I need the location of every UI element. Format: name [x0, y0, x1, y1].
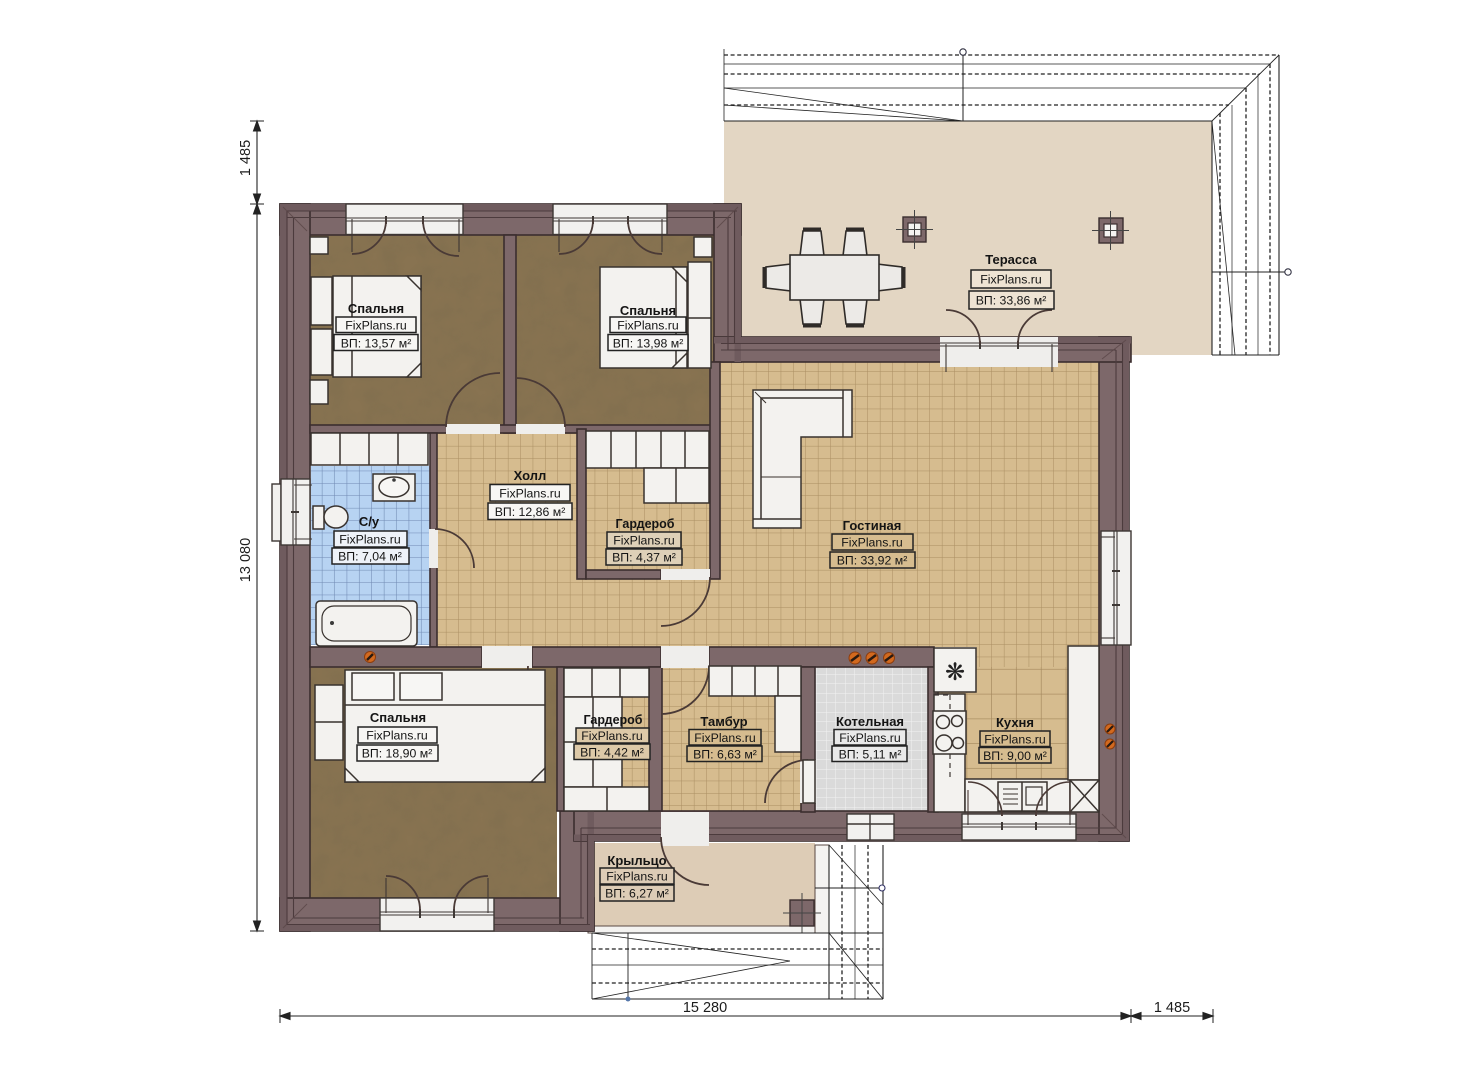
svg-text:ВП: 13,98 м²: ВП: 13,98 м²: [613, 337, 684, 351]
svg-text:Спальня: Спальня: [370, 710, 426, 725]
svg-text:FixPlans.ru: FixPlans.ru: [581, 729, 643, 743]
svg-text:Гардероб: Гардероб: [583, 713, 642, 727]
svg-text:ВП: 9,00 м²: ВП: 9,00 м²: [983, 749, 1047, 763]
svg-text:FixPlans.ru: FixPlans.ru: [694, 731, 756, 745]
svg-text:1 485: 1 485: [238, 140, 254, 176]
svg-text:ВП: 7,04 м²: ВП: 7,04 м²: [338, 550, 402, 564]
svg-text:13 080: 13 080: [238, 538, 254, 582]
svg-text:FixPlans.ru: FixPlans.ru: [499, 487, 561, 501]
svg-text:1 485: 1 485: [1154, 1000, 1190, 1016]
svg-text:FixPlans.ru: FixPlans.ru: [980, 273, 1042, 287]
svg-text:Крыльцо: Крыльцо: [607, 853, 666, 868]
svg-text:Холл: Холл: [514, 468, 547, 483]
svg-text:FixPlans.ru: FixPlans.ru: [839, 731, 901, 745]
svg-text:Котельная: Котельная: [836, 714, 904, 729]
svg-text:ВП: 4,37 м²: ВП: 4,37 м²: [612, 551, 676, 565]
svg-text:FixPlans.ru: FixPlans.ru: [366, 729, 428, 743]
svg-text:Гостиная: Гостиная: [843, 518, 902, 533]
svg-text:FixPlans.ru: FixPlans.ru: [617, 319, 679, 333]
svg-text:ВП: 6,63 м²: ВП: 6,63 м²: [693, 748, 757, 762]
svg-text:Гардероб: Гардероб: [615, 517, 674, 531]
svg-text:Спальня: Спальня: [620, 303, 676, 318]
svg-text:Тамбур: Тамбур: [700, 714, 747, 729]
svg-text:ВП: 6,27 м²: ВП: 6,27 м²: [605, 887, 669, 901]
svg-text:Спальня: Спальня: [348, 301, 404, 316]
svg-text:FixPlans.ru: FixPlans.ru: [339, 533, 401, 547]
svg-text:FixPlans.ru: FixPlans.ru: [841, 536, 903, 550]
svg-text:ВП: 18,90 м²: ВП: 18,90 м²: [362, 747, 433, 761]
svg-text:ВП: 33,92 м²: ВП: 33,92 м²: [837, 554, 908, 568]
svg-text:ВП: 33,86 м²: ВП: 33,86 м²: [976, 294, 1047, 308]
svg-text:С/у: С/у: [359, 514, 380, 529]
svg-text:FixPlans.ru: FixPlans.ru: [613, 534, 675, 548]
svg-text:FixPlans.ru: FixPlans.ru: [606, 870, 668, 884]
svg-text:ВП: 13,57 м²: ВП: 13,57 м²: [341, 337, 412, 351]
svg-text:Терасса: Терасса: [985, 252, 1037, 267]
svg-text:ВП: 5,11 м²: ВП: 5,11 м²: [839, 748, 902, 762]
svg-text:❋: ❋: [945, 659, 965, 686]
svg-text:ВП: 4,42 м²: ВП: 4,42 м²: [580, 746, 644, 760]
svg-text:FixPlans.ru: FixPlans.ru: [345, 319, 407, 333]
svg-text:ВП: 12,86 м²: ВП: 12,86 м²: [495, 505, 566, 519]
svg-text:15 280: 15 280: [683, 1000, 727, 1016]
svg-text:FixPlans.ru: FixPlans.ru: [984, 733, 1046, 747]
svg-text:Кухня: Кухня: [996, 715, 1034, 730]
